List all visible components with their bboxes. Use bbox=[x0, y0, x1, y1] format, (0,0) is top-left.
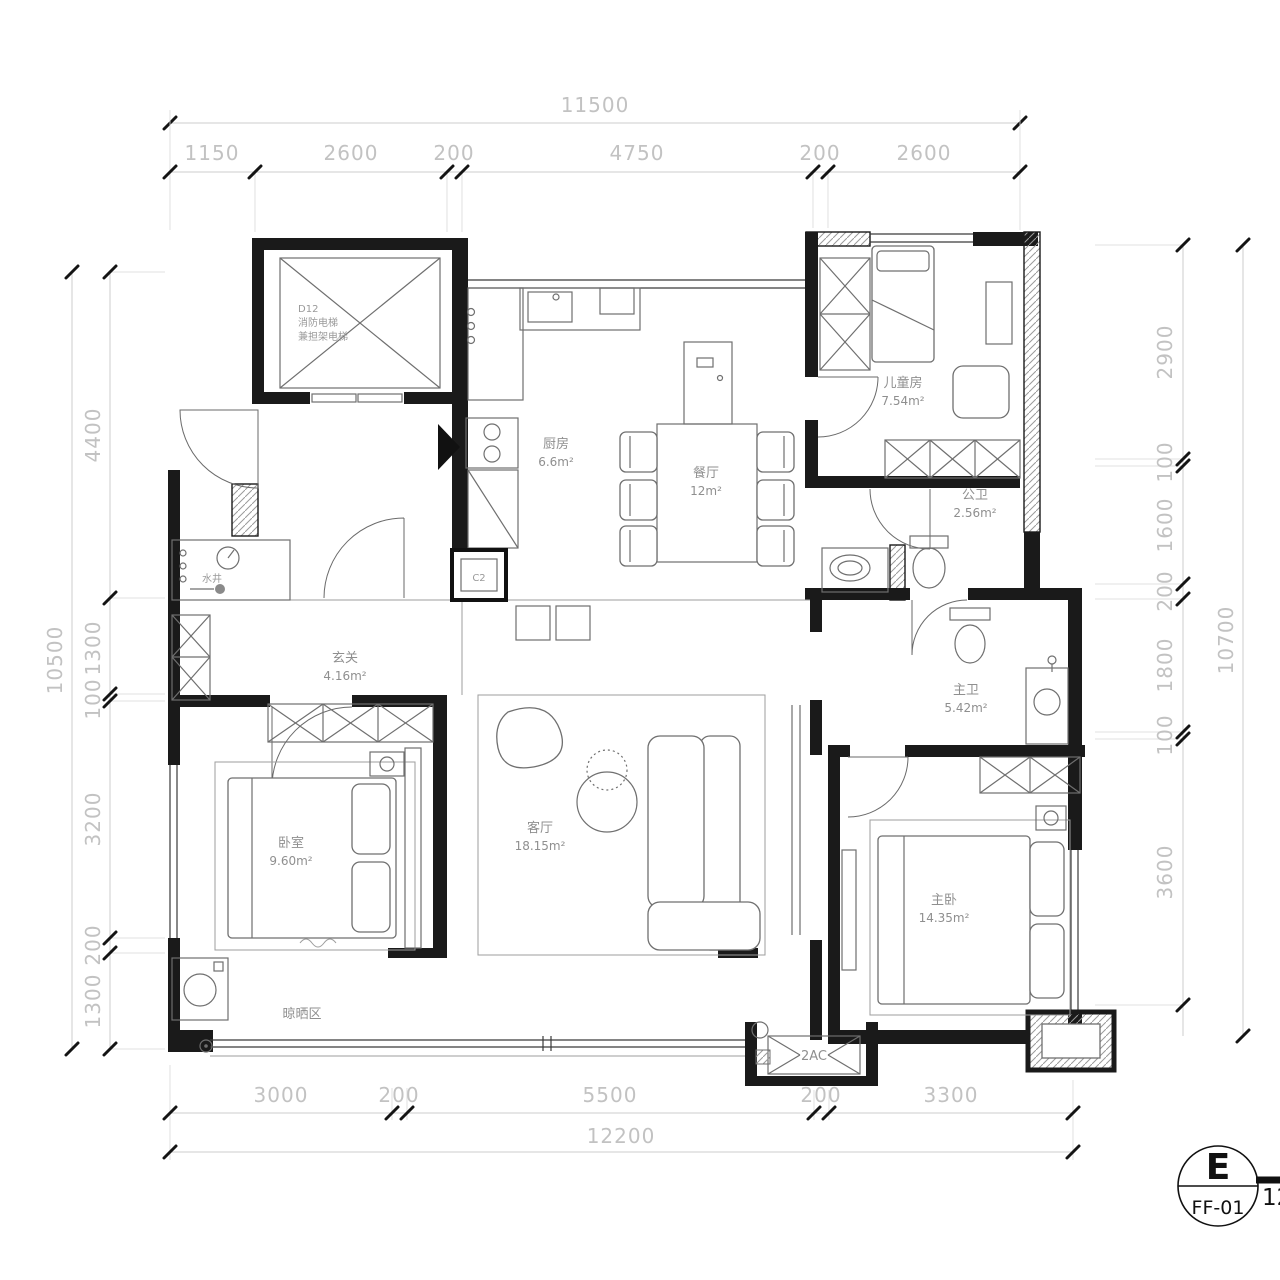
dim-left-seg-3: 3200 bbox=[81, 792, 105, 847]
dim-right-seg-6: 3600 bbox=[1153, 845, 1177, 900]
dining-chairs bbox=[620, 432, 794, 566]
kids-bed bbox=[872, 246, 934, 362]
elevator-label-1: 消防电梯 bbox=[298, 316, 338, 329]
ac-unit: 2AC bbox=[752, 1022, 860, 1074]
dim-left-seg-0: 4400 bbox=[81, 408, 105, 463]
room-label-public-bath: 公卫 bbox=[962, 488, 988, 503]
room-label-dining: 餐厅 bbox=[693, 465, 719, 481]
dim-bottom-seg-2: 5500 bbox=[583, 1083, 638, 1107]
master-bed bbox=[878, 836, 1064, 1004]
sofa bbox=[648, 736, 760, 950]
living-room: 客厅 18.15m² bbox=[478, 695, 765, 955]
stove-icon bbox=[438, 418, 518, 470]
dimension-chain-right: 2900 100 1600 200 1800 100 3600 10700 bbox=[1095, 239, 1249, 1042]
dim-right-seg-2: 1600 bbox=[1153, 498, 1177, 553]
dim-bottom-seg-3: 200 bbox=[800, 1083, 841, 1107]
room-area-public-bath: 2.56m² bbox=[953, 506, 996, 520]
room-label-shaft: 水井 bbox=[202, 572, 222, 585]
dim-bottom-seg-0: 3000 bbox=[254, 1083, 309, 1107]
dim-left-total: 10500 bbox=[43, 626, 67, 695]
toilet-icon-master bbox=[950, 608, 990, 663]
toilet-icon bbox=[910, 536, 948, 588]
dim-right-seg-5: 100 bbox=[1153, 714, 1177, 755]
kitchen: C2 厨房 6.6m² bbox=[438, 288, 640, 640]
dim-top-seg-5: 2600 bbox=[897, 141, 952, 165]
elevator: D12 消防电梯 兼担架电梯 bbox=[280, 258, 440, 402]
room-label-master: 主卧 bbox=[931, 893, 957, 908]
detail-number: 12 bbox=[1262, 1185, 1280, 1211]
dim-bottom-seg-1: 200 bbox=[378, 1083, 419, 1107]
coffee-table bbox=[577, 772, 637, 832]
room-area-kids: 7.54m² bbox=[881, 394, 924, 408]
room-area-entry: 4.16m² bbox=[323, 669, 366, 683]
detail-ref: FF-01 bbox=[1192, 1197, 1245, 1219]
dimension-chain-bottom: 3000 200 5500 200 3300 12200 bbox=[164, 1065, 1079, 1160]
washing-machine-icon bbox=[172, 958, 228, 1020]
armchair bbox=[497, 708, 563, 768]
dining-room: 餐厅 12m² bbox=[620, 342, 794, 566]
elevator-code: D12 bbox=[298, 304, 318, 315]
room-label-bedroom: 卧室 bbox=[278, 835, 304, 851]
master-bedroom: 主卧 14.35m² bbox=[842, 757, 1080, 1015]
master-bath: 主卫 5.42m² bbox=[944, 608, 1068, 744]
room-area-dining: 12m² bbox=[690, 484, 722, 498]
dim-top-seg-2: 200 bbox=[433, 141, 474, 165]
ac-label: 2AC bbox=[801, 1049, 827, 1064]
kids-wardrobe bbox=[820, 258, 870, 370]
detail-letter: E bbox=[1206, 1147, 1231, 1188]
dim-left-seg-5: 1300 bbox=[81, 974, 105, 1029]
dim-top-seg-3: 4750 bbox=[610, 141, 665, 165]
entry-hall: 玄关 4.16m² bbox=[172, 615, 367, 700]
dim-left-seg-4: 200 bbox=[81, 924, 105, 965]
water-shaft: 水井 bbox=[172, 540, 290, 600]
room-label-living: 客厅 bbox=[527, 820, 553, 836]
dim-right-seg-4: 1800 bbox=[1153, 638, 1177, 693]
water-meter-icon bbox=[217, 547, 239, 569]
dimension-chain-left: 4400 1300 100 3200 200 1300 10500 bbox=[43, 266, 165, 1055]
dimension-chain-top: 11500 1150 2600 200 4750 200 2600 bbox=[164, 93, 1026, 232]
room-area-master-bath: 5.42m² bbox=[944, 701, 987, 715]
bedroom-wardrobe bbox=[268, 704, 433, 742]
dim-bottom-total: 12200 bbox=[587, 1124, 656, 1148]
title-block: E FF-01 12 bbox=[1178, 1146, 1280, 1226]
c2-box: C2 bbox=[452, 550, 506, 600]
room-label-kitchen: 厨房 bbox=[543, 436, 569, 452]
bedroom: 卧室 9.60m² bbox=[215, 704, 433, 950]
room-area-bedroom: 9.60m² bbox=[269, 854, 312, 868]
room-area-kitchen: 6.6m² bbox=[538, 455, 574, 469]
dim-right-seg-1: 100 bbox=[1153, 441, 1177, 482]
dim-left-seg-2: 100 bbox=[81, 678, 105, 719]
dim-top-seg-1: 2600 bbox=[324, 141, 379, 165]
kids-wardrobe-bottom bbox=[885, 440, 1020, 478]
floor-plan-canvas: 11500 1150 2600 200 4750 200 2600 bbox=[0, 0, 1280, 1280]
dim-top-seg-4: 200 bbox=[799, 141, 840, 165]
room-area-living: 18.15m² bbox=[515, 839, 566, 853]
elevator-label-2: 兼担架电梯 bbox=[298, 330, 348, 343]
dim-top-total: 11500 bbox=[561, 93, 630, 117]
room-label-kids: 儿童房 bbox=[883, 375, 922, 391]
room-label-master-bath: 主卫 bbox=[953, 683, 979, 698]
kids-room: 儿童房 7.54m² bbox=[820, 246, 1020, 478]
c2-label: C2 bbox=[472, 573, 485, 584]
dim-left-seg-1: 1300 bbox=[81, 621, 105, 676]
master-wardrobe bbox=[980, 757, 1080, 793]
room-label-drying: 晾晒区 bbox=[282, 1006, 321, 1022]
dim-right-seg-0: 2900 bbox=[1153, 325, 1177, 380]
room-area-master: 14.35m² bbox=[919, 911, 970, 925]
public-bath: 公卫 2.56m² bbox=[822, 488, 997, 592]
dim-bottom-seg-4: 3300 bbox=[924, 1083, 979, 1107]
dim-right-seg-3: 200 bbox=[1153, 570, 1177, 611]
dim-right-total: 10700 bbox=[1214, 606, 1238, 675]
room-label-entry: 玄关 bbox=[332, 651, 358, 666]
dim-top-seg-0: 1150 bbox=[185, 141, 240, 165]
floor-plan-drawing: 11500 1150 2600 200 4750 200 2600 bbox=[0, 0, 1280, 1280]
